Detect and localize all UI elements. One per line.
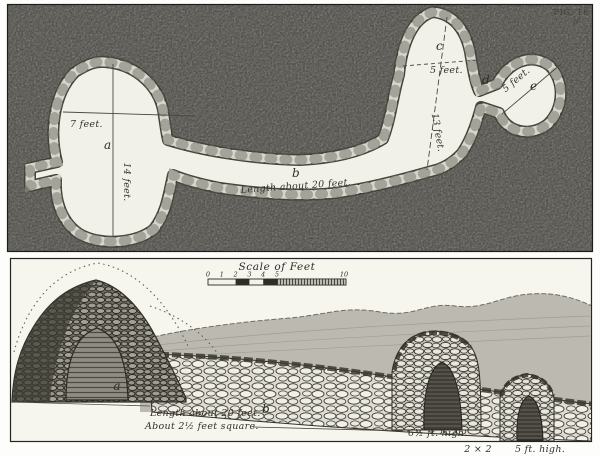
chamber-a-length-label: 14 feet. [121,162,132,201]
section-chamber-a-letter: a [113,379,120,393]
figure-number-label: FIG. 18 [553,8,589,17]
passage-d-letter: d [482,73,490,87]
scale-tick-0: 0 [206,271,210,279]
scale-tick-5: 5 [275,271,279,279]
plan-panel: 7 feet. a 14 feet. b Length about 20 fee… [8,5,593,252]
chamber-c-letter: c [436,39,443,53]
chamber-c-width-label: 5 feet. [430,65,463,76]
middle-arch-height-label: 6½ ft. high. [408,428,468,439]
section-passage-b-letter: b [262,402,270,416]
scale-segment-dark-2 [263,279,277,285]
section-panel: Scale of Feet 0 1 2 3 4 5 10 a Length ab… [11,259,593,442]
opening-size-label: 2 × 2 [463,444,492,455]
scale-tick-3: 3 [247,271,251,279]
section-passage-length-label: Length about 20 feet. [149,408,261,419]
engraving-figure: 7 feet. a 14 feet. b Length about 20 fee… [0,0,600,456]
chamber-a-width-label: 7 feet. [70,119,103,130]
right-arch-height-label: 5 ft. high. [515,444,565,455]
chamber-e-letter: e [530,79,537,93]
scale-tick-2: 2 [233,271,238,279]
scale-segment-dark-1 [236,279,250,285]
passage-b-letter: b [292,166,300,180]
figure-canvas: 7 feet. a 14 feet. b Length about 20 fee… [0,0,600,456]
scale-segment-hatched [277,279,346,285]
scale-tick-4: 4 [260,271,265,279]
scale-tick-10: 10 [340,271,348,279]
section-passage-size-label: About 2½ feet square. [144,421,259,432]
north-mark: N [572,18,580,26]
chamber-a-letter: a [104,138,111,152]
scale-tick-1: 1 [220,271,224,279]
